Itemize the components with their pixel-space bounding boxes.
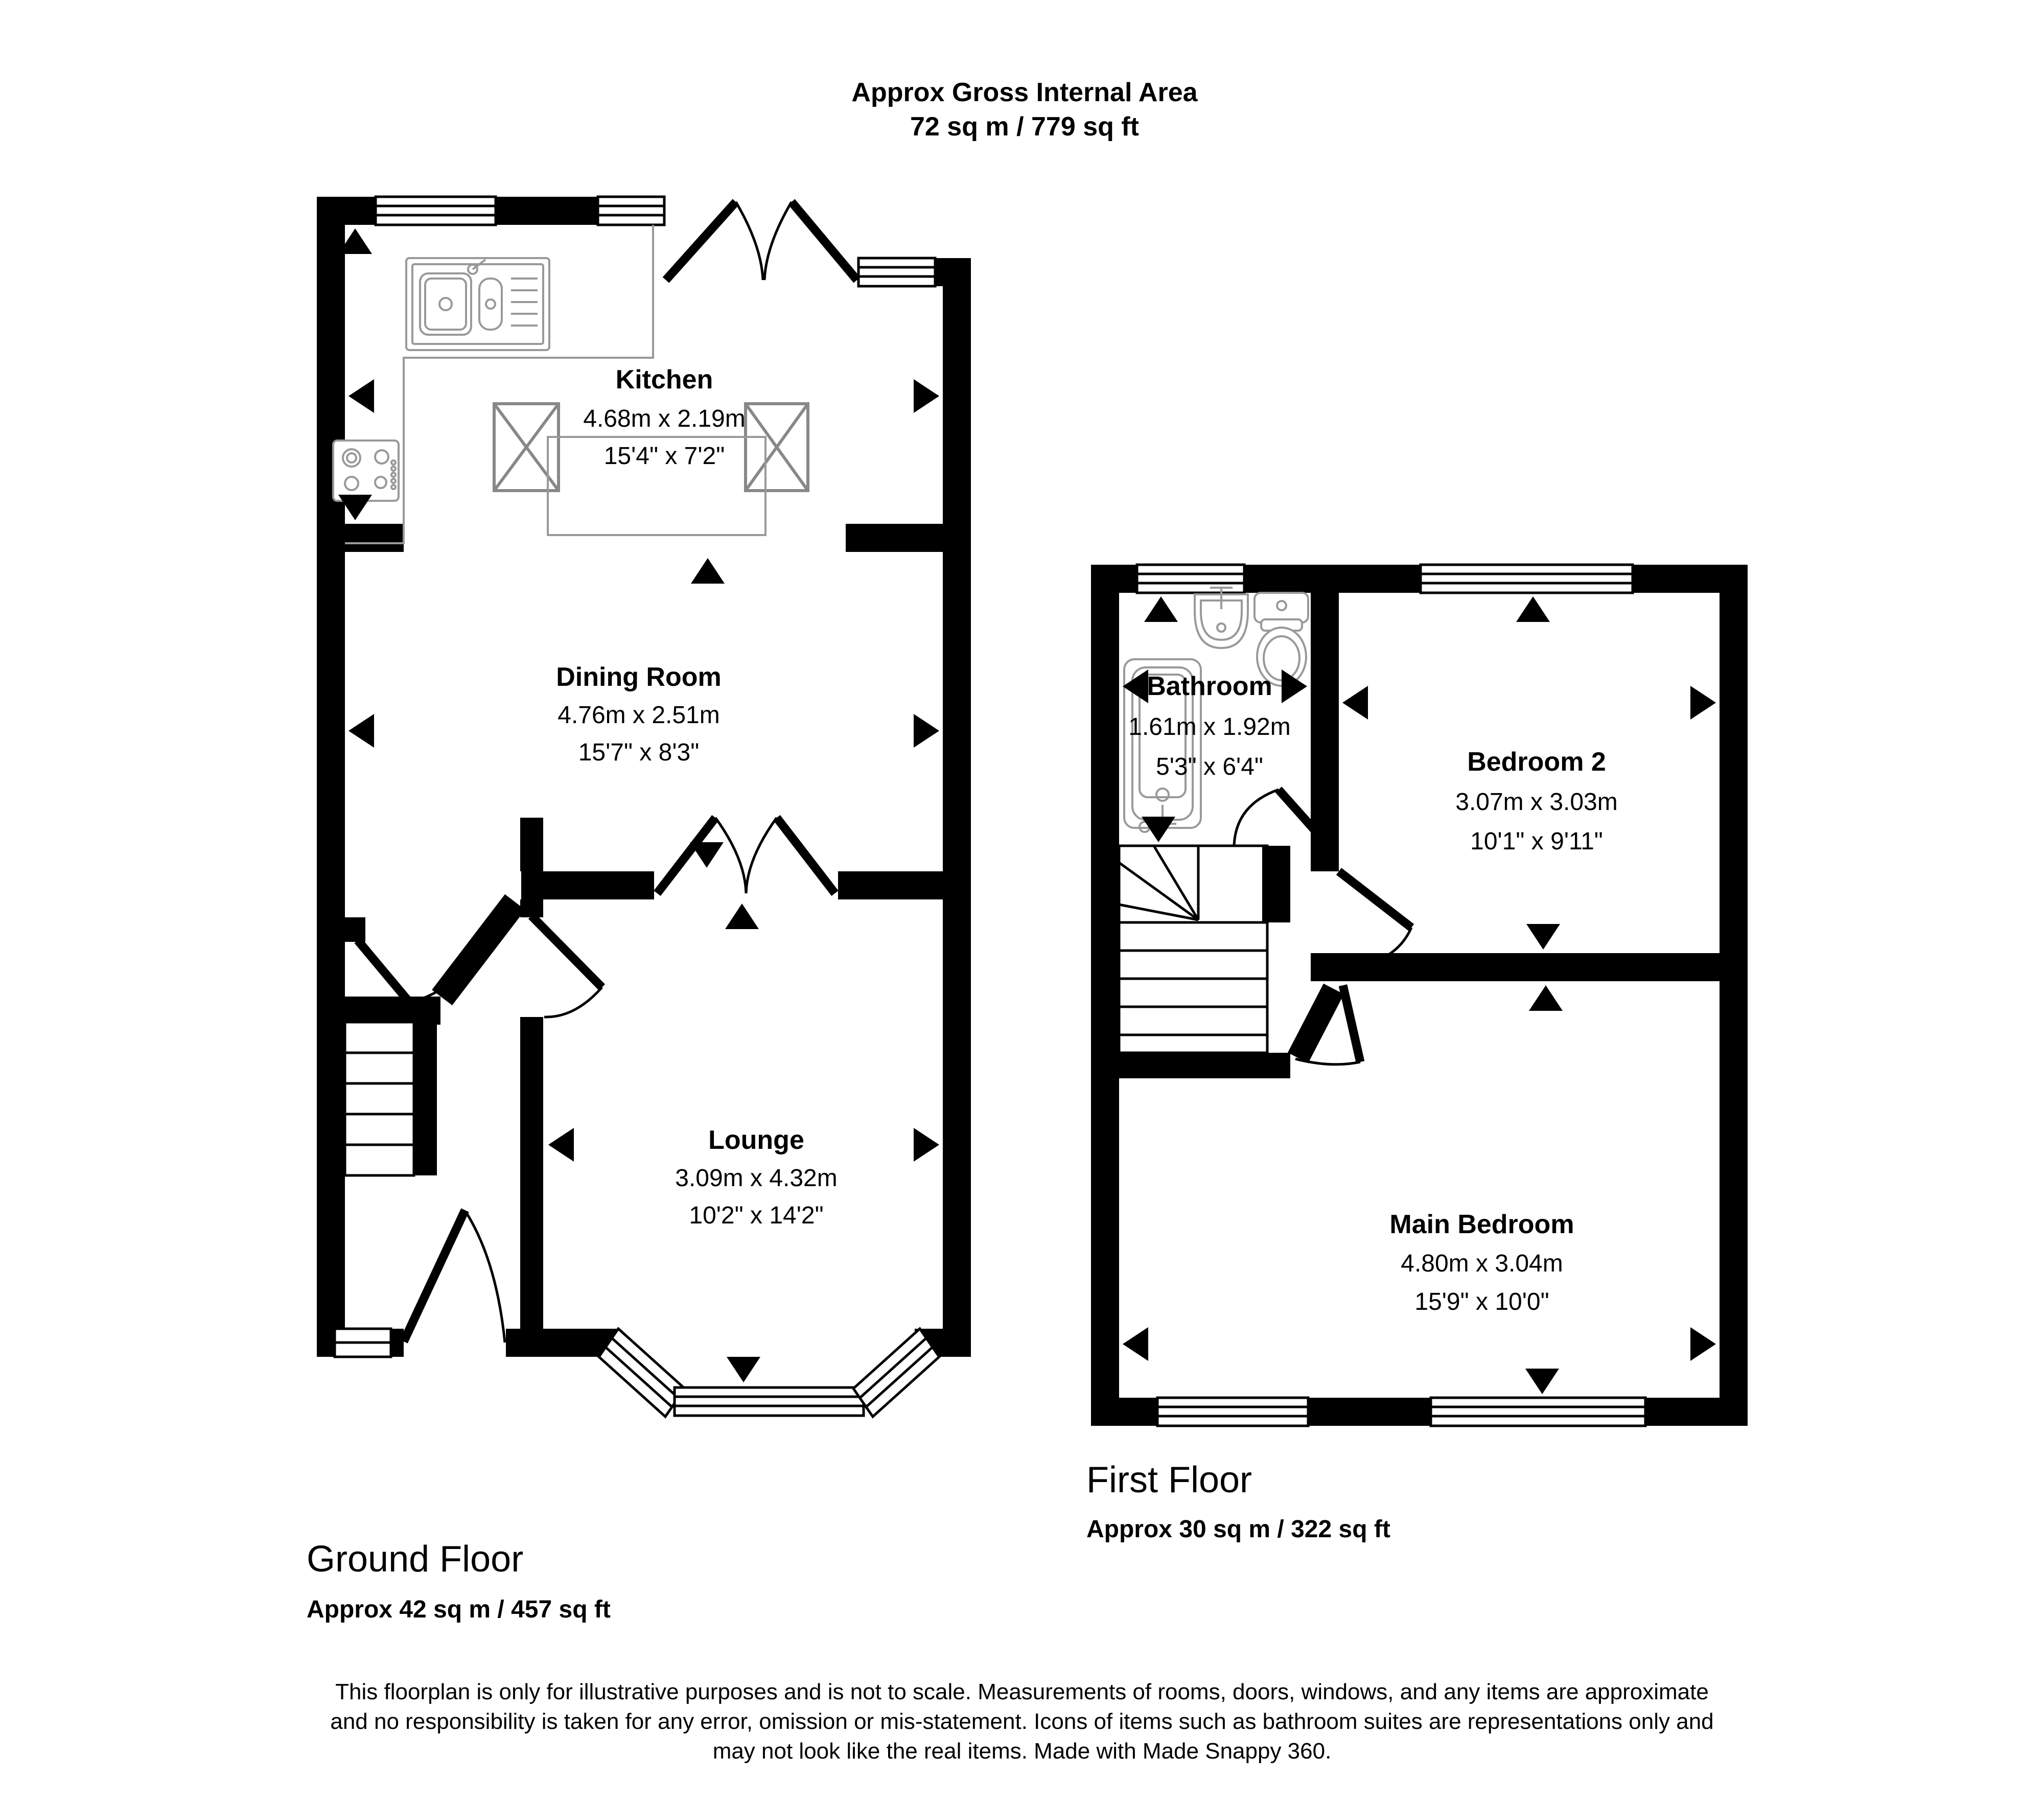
room-label-bedroom2: Bedroom 2 3.07m x 3.03m 10'1" x 9'11" xyxy=(1455,747,1617,855)
floorplan-page: Approx Gross Internal Area 72 sq m / 779… xyxy=(0,0,2044,1804)
measure-arrow xyxy=(690,842,724,868)
wall xyxy=(317,197,345,1357)
disclaimer-line-1: This floorplan is only for illustrative … xyxy=(335,1679,1709,1704)
main-bedroom-imperial: 15'9" x 10'0" xyxy=(1414,1288,1549,1315)
bedroom2-name: Bedroom 2 xyxy=(1467,747,1606,777)
measure-arrow xyxy=(1142,817,1175,842)
ground-floor-plan: Kitchen 4.68m x 2.19m 15'4" x 7'2" Dinin… xyxy=(317,197,971,1417)
floorplan-canvas: Approx Gross Internal Area 72 sq m / 779… xyxy=(0,0,2044,1804)
kitchen-name: Kitchen xyxy=(616,365,713,395)
measure-arrow xyxy=(349,379,374,413)
kitchen-unit-icon xyxy=(746,404,808,491)
lounge-metric: 3.09m x 4.32m xyxy=(675,1165,837,1192)
measure-arrow xyxy=(1529,985,1563,1011)
lounge-imperial: 10'2" x 14'2" xyxy=(689,1202,823,1229)
kitchen-imperial: 15'4" x 7'2" xyxy=(604,443,725,470)
measure-arrow xyxy=(727,1357,760,1382)
wall xyxy=(520,899,543,917)
main-bedroom-metric: 4.80m x 3.04m xyxy=(1401,1250,1563,1277)
room-label-kitchen: Kitchen 4.68m x 2.19m 15'4" x 7'2" xyxy=(583,365,745,470)
measure-arrow xyxy=(1690,686,1716,720)
disclaimer: This floorplan is only for illustrative … xyxy=(330,1679,1713,1764)
window-icon xyxy=(335,1329,391,1357)
wall xyxy=(317,997,440,1025)
double-door-icon xyxy=(657,818,835,893)
wall xyxy=(838,871,943,899)
lounge-name: Lounge xyxy=(708,1125,804,1155)
wall xyxy=(1311,953,1748,981)
measure-arrow xyxy=(1342,686,1368,720)
bedroom2-imperial: 10'1" x 9'11" xyxy=(1470,828,1603,855)
wall-stub xyxy=(846,524,971,552)
dining-imperial: 15'7" x 8'3" xyxy=(578,739,700,766)
wall xyxy=(943,258,971,1357)
hob-icon xyxy=(333,441,399,501)
measure-arrow xyxy=(725,904,759,929)
ground-floor-label: Ground Floor xyxy=(307,1539,523,1580)
first-floor-plan: Bathroom 1.61m x 1.92m 5'3" x 6'4" Bedro… xyxy=(1091,565,1748,1426)
wall xyxy=(1091,1053,1290,1078)
wall xyxy=(1091,565,1119,1426)
measure-arrow xyxy=(349,714,374,748)
gross-area-value: 72 sq m / 779 sq ft xyxy=(910,112,1139,142)
first-floor-label: First Floor xyxy=(1086,1460,1252,1500)
kitchen-sink-icon xyxy=(406,258,549,350)
wall-stub xyxy=(317,524,404,552)
door-icon xyxy=(1339,871,1411,967)
measure-arrow xyxy=(1526,924,1560,950)
bathroom-name: Bathroom xyxy=(1147,672,1272,701)
ground-floor-area: Approx 42 sq m / 457 sq ft xyxy=(307,1596,611,1623)
bay-window-icon xyxy=(599,1329,939,1417)
room-label-dining: Dining Room 4.76m x 2.51m 15'7" x 8'3" xyxy=(556,662,722,766)
window-icon xyxy=(598,197,664,225)
window-icon xyxy=(376,197,496,225)
dining-name: Dining Room xyxy=(556,662,722,692)
disclaimer-line-2: and no responsibility is taken for any e… xyxy=(330,1709,1713,1734)
room-label-lounge: Lounge 3.09m x 4.32m 10'2" x 14'2" xyxy=(675,1125,837,1229)
disclaimer-line-3: may not look like the real items. Made w… xyxy=(713,1739,1332,1764)
door-icon xyxy=(531,916,602,1017)
front-door-icon xyxy=(404,1210,506,1357)
bathroom-imperial: 5'3" x 6'4" xyxy=(1156,753,1263,780)
kitchen-unit-icon xyxy=(494,404,559,491)
angled-wall xyxy=(1298,989,1334,1058)
measure-arrow xyxy=(914,379,939,413)
basin-icon xyxy=(1195,588,1248,648)
measure-arrow xyxy=(1690,1327,1716,1361)
measure-arrow xyxy=(1516,596,1550,622)
window-icon xyxy=(1431,1398,1645,1426)
measure-arrow xyxy=(1123,1327,1148,1361)
main-bedroom-name: Main Bedroom xyxy=(1389,1210,1574,1239)
measure-arrow xyxy=(548,1128,574,1162)
window-icon xyxy=(858,258,935,286)
french-doors-icon xyxy=(666,202,857,280)
measure-arrow xyxy=(1525,1369,1559,1394)
measure-arrow xyxy=(914,714,939,748)
stairs-icon xyxy=(345,1022,437,1175)
window-icon xyxy=(1421,565,1633,593)
dining-metric: 4.76m x 2.51m xyxy=(558,702,719,729)
kitchen-metric: 4.68m x 2.19m xyxy=(583,405,745,432)
measure-arrow xyxy=(1144,596,1178,622)
gross-area-title: Approx Gross Internal Area xyxy=(851,78,1198,107)
angled-wall xyxy=(442,902,515,998)
wall xyxy=(1720,565,1748,1426)
stairs-icon xyxy=(1119,846,1290,1053)
measure-arrow xyxy=(691,558,725,584)
measure-arrow xyxy=(914,1128,939,1162)
bedroom2-metric: 3.07m x 3.03m xyxy=(1455,789,1617,816)
bathroom-metric: 1.61m x 1.92m xyxy=(1128,713,1290,741)
room-label-main-bedroom: Main Bedroom 4.80m x 3.04m 15'9" x 10'0" xyxy=(1389,1210,1574,1315)
wall-stub xyxy=(520,818,543,871)
wall xyxy=(521,871,654,899)
window-icon xyxy=(1157,1398,1308,1426)
first-floor-area: Approx 30 sq m / 322 sq ft xyxy=(1086,1516,1390,1543)
wall xyxy=(520,1017,543,1357)
